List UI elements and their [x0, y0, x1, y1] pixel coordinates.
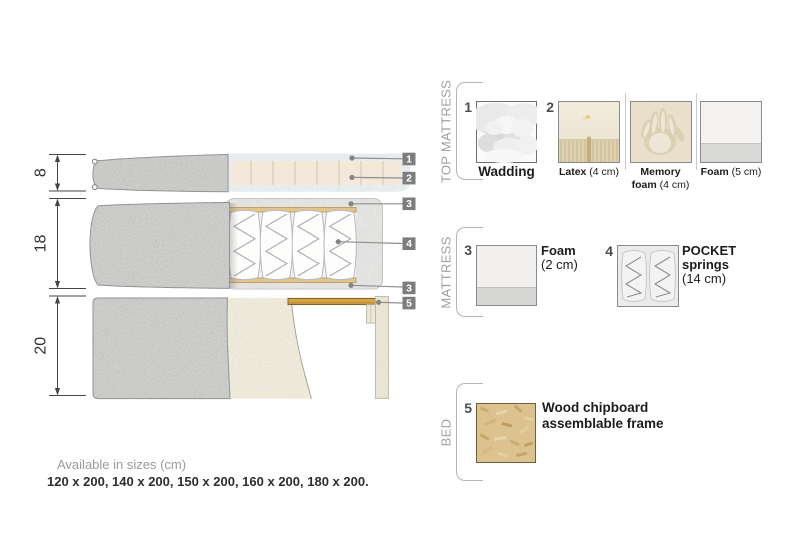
- svg-text:18: 18: [33, 235, 50, 253]
- svg-text:5: 5: [406, 298, 412, 310]
- svg-text:3: 3: [406, 282, 412, 294]
- svg-text:1: 1: [406, 153, 412, 165]
- svg-text:2: 2: [406, 173, 412, 185]
- svg-text:8: 8: [33, 168, 50, 177]
- svg-text:3: 3: [406, 198, 412, 210]
- svg-text:20: 20: [33, 337, 50, 355]
- svg-text:4: 4: [406, 238, 412, 250]
